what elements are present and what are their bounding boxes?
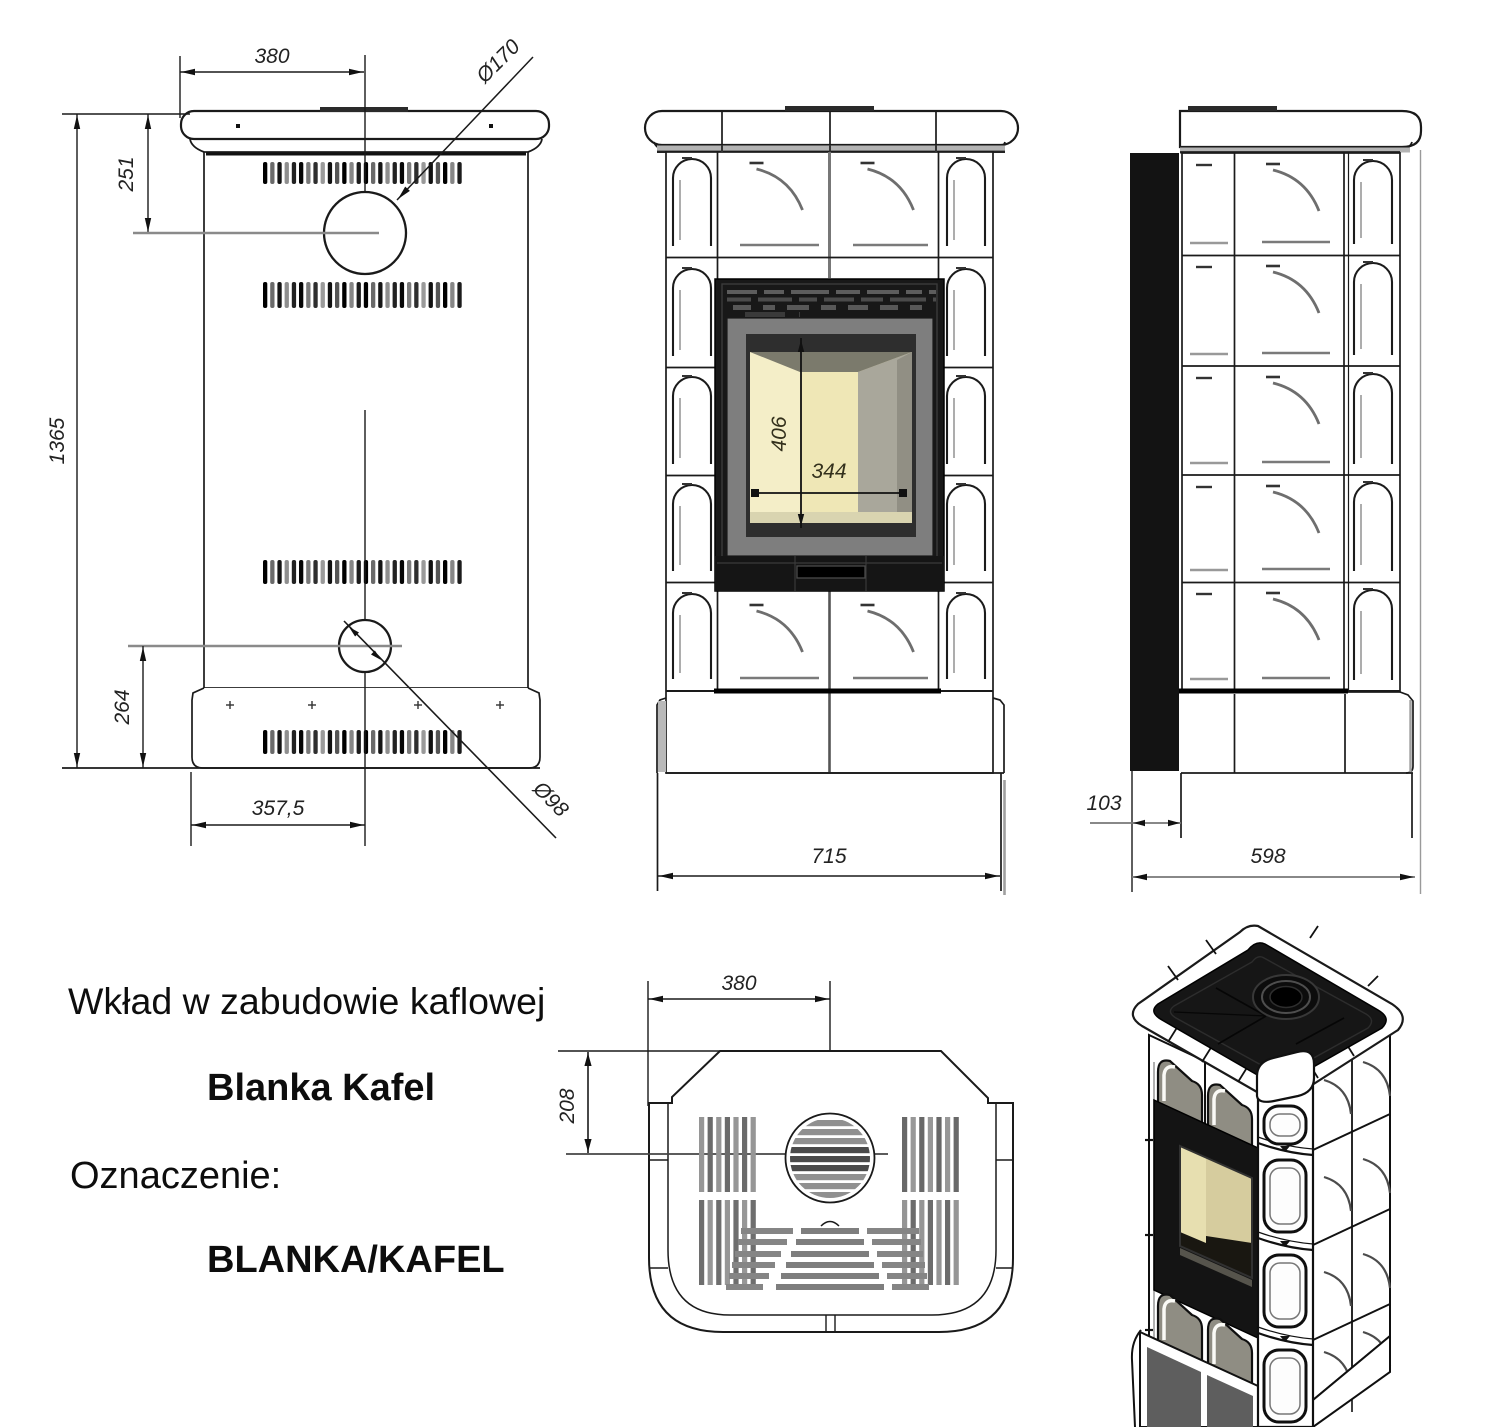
svg-text:344: 344 bbox=[811, 460, 846, 483]
svg-text:Oznaczenie:: Oznaczenie: bbox=[70, 1155, 281, 1197]
svg-text:Wkład w zabudowie kaflowej: Wkład w zabudowie kaflowej bbox=[68, 980, 545, 1022]
svg-text:715: 715 bbox=[811, 845, 846, 868]
svg-text:598: 598 bbox=[1250, 845, 1285, 868]
svg-text:264: 264 bbox=[111, 689, 134, 725]
svg-text:251: 251 bbox=[115, 156, 138, 192]
svg-text:103: 103 bbox=[1086, 792, 1121, 815]
svg-text:208: 208 bbox=[556, 1088, 579, 1124]
svg-text:380: 380 bbox=[721, 972, 756, 995]
svg-text:357,5: 357,5 bbox=[252, 797, 305, 820]
svg-text:406: 406 bbox=[768, 416, 791, 451]
svg-text:BLANKA/KAFEL: BLANKA/KAFEL bbox=[207, 1239, 505, 1281]
svg-text:380: 380 bbox=[254, 45, 289, 68]
svg-text:1365: 1365 bbox=[46, 417, 69, 464]
svg-text:Blanka Kafel: Blanka Kafel bbox=[207, 1067, 435, 1109]
